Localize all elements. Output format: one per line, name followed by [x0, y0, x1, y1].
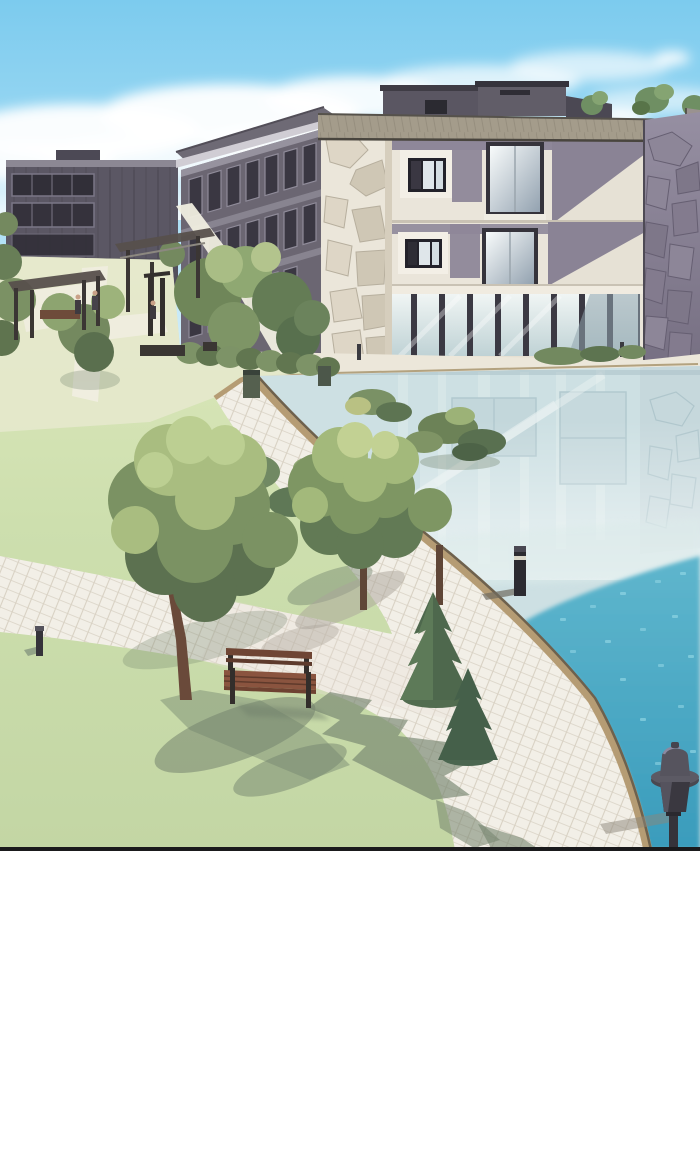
webtoon-panel	[0, 0, 700, 1162]
panel-border	[0, 847, 700, 1162]
far-left-windows	[12, 174, 94, 256]
window-small-upper	[400, 150, 452, 198]
bottom-white-margin	[0, 851, 700, 1162]
stone-wall	[644, 112, 700, 370]
window-small-middle	[398, 232, 448, 274]
building-main	[318, 108, 700, 374]
window-large-upper	[484, 142, 546, 220]
window-large-middle	[482, 228, 538, 288]
stone-pillar	[321, 114, 392, 374]
